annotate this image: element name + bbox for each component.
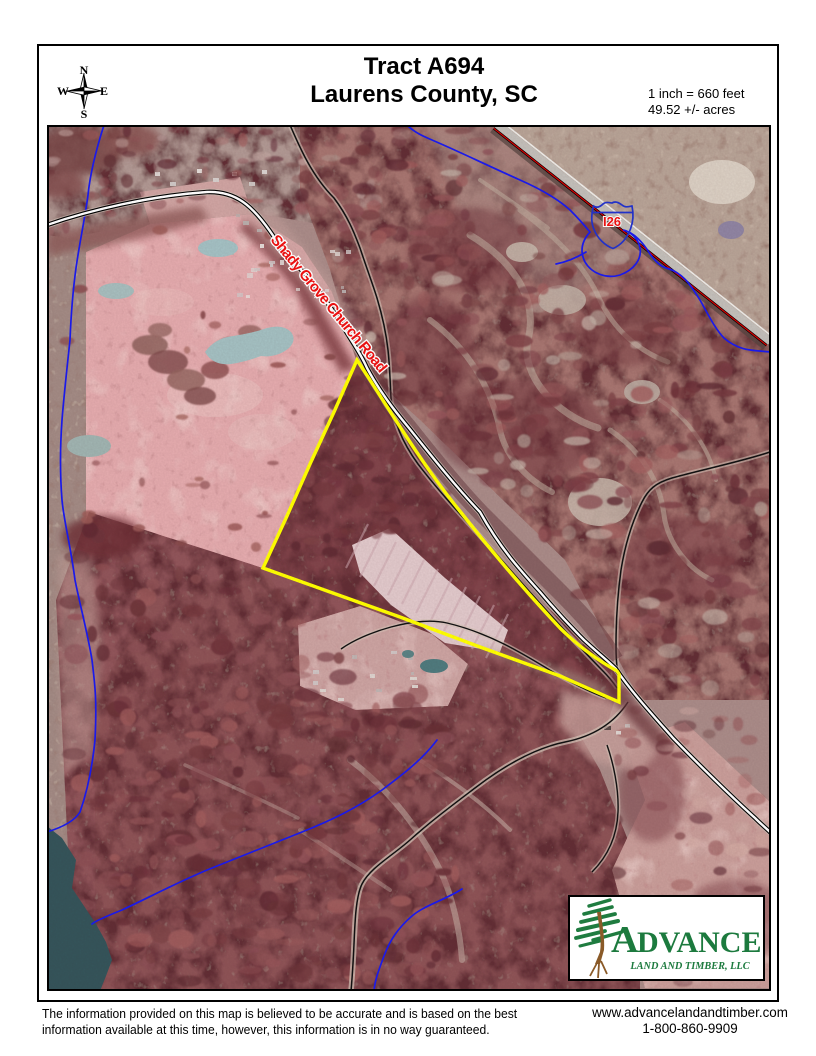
svg-text:S: S: [81, 107, 88, 120]
svg-text:W: W: [57, 84, 69, 98]
svg-text:A: A: [611, 919, 639, 961]
svg-text:E: E: [100, 84, 108, 98]
svg-text:LAND AND TIMBER, LLC: LAND AND TIMBER, LLC: [629, 961, 749, 972]
svg-text:N: N: [80, 63, 89, 77]
svg-text:DVANCE: DVANCE: [637, 926, 761, 959]
